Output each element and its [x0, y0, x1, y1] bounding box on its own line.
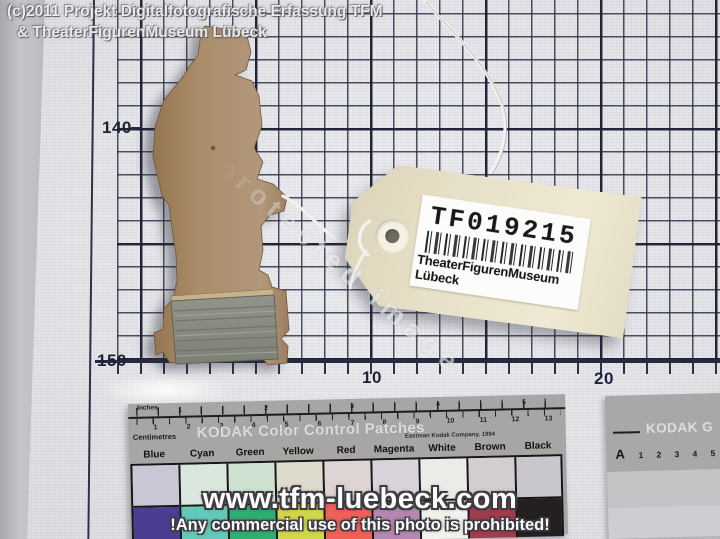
- inch-number: 4: [433, 400, 443, 407]
- website-watermark: www.tfm-luebeck.com: [0, 483, 720, 516]
- kodak-company-text: Eastman Kodak Company, 1994: [405, 432, 495, 440]
- inch-number: 1: [175, 406, 185, 413]
- patch-label-red: Red: [322, 445, 370, 459]
- gray-strip-rule: [613, 431, 640, 434]
- gray-index-5: 5: [710, 448, 715, 458]
- cm-number: 12: [510, 416, 520, 423]
- inches-label: Inches: [137, 404, 158, 411]
- copyright-watermark: (c)2011 Projekt Digitalfotografische Erf…: [7, 1, 383, 43]
- patch-label-brown: Brown: [466, 441, 514, 455]
- inch-number: 3: [347, 402, 357, 409]
- patch-label-white: White: [418, 442, 466, 456]
- gray-index-3: 3: [674, 449, 679, 459]
- inch-number: 2: [261, 404, 271, 411]
- patch-label-yellow: Yellow: [274, 446, 322, 460]
- centimetres-label: Centimetres: [133, 432, 177, 442]
- cm-number: 2: [183, 424, 193, 431]
- gray-index-A: A: [615, 447, 625, 462]
- inch-number: 5: [519, 398, 529, 405]
- patch-label-green: Green: [226, 447, 274, 461]
- prohibition-watermark: !Any commercial use of this photo is pro…: [0, 516, 720, 535]
- kodak-gray-brand: KODAK G: [646, 419, 714, 436]
- cm-number: 11: [478, 417, 488, 424]
- cm-number: 13: [543, 415, 553, 422]
- cm-number: 1: [150, 424, 160, 431]
- cm-number: 10: [445, 418, 455, 425]
- patch-label-blue: Blue: [130, 449, 178, 463]
- kodak-brand-text: KODAK Color Control Patches: [196, 419, 425, 441]
- gray-index-2: 2: [656, 450, 661, 460]
- patch-label-magenta: Magenta: [370, 443, 418, 457]
- gray-index-4: 4: [692, 449, 697, 459]
- patch-label-black: Black: [514, 440, 562, 454]
- string-loop: [360, 221, 370, 255]
- copyright-line1: (c)2011 Projekt Digitalfotografische Erf…: [7, 1, 383, 22]
- patch-label-cyan: Cyan: [178, 448, 226, 462]
- gray-index-1: 1: [638, 450, 643, 460]
- museum-object-photo: 140 150 10 20: [0, 0, 720, 539]
- copyright-line2: & TheaterFigurenMuseum Lübeck: [17, 22, 383, 43]
